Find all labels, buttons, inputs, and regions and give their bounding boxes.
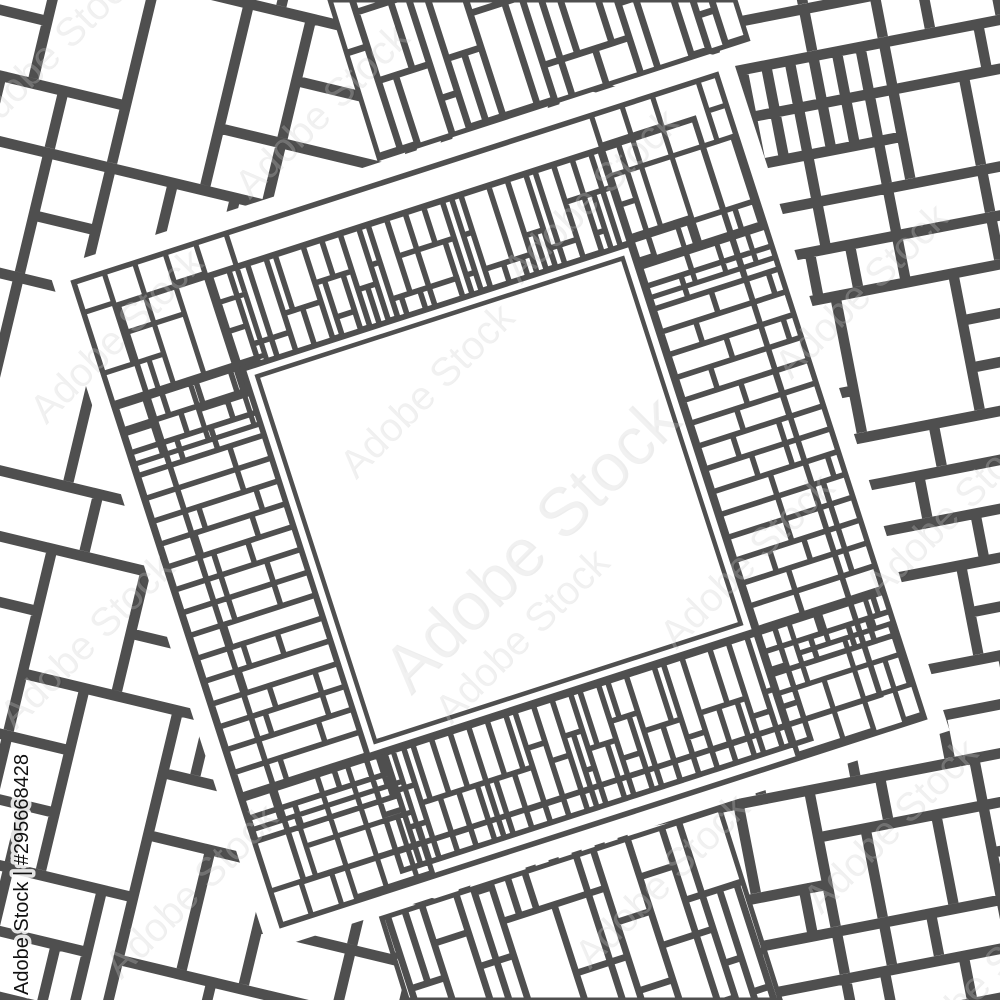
svg-text:Adobe Stock | #295668428: Adobe Stock | #295668428	[11, 754, 33, 995]
